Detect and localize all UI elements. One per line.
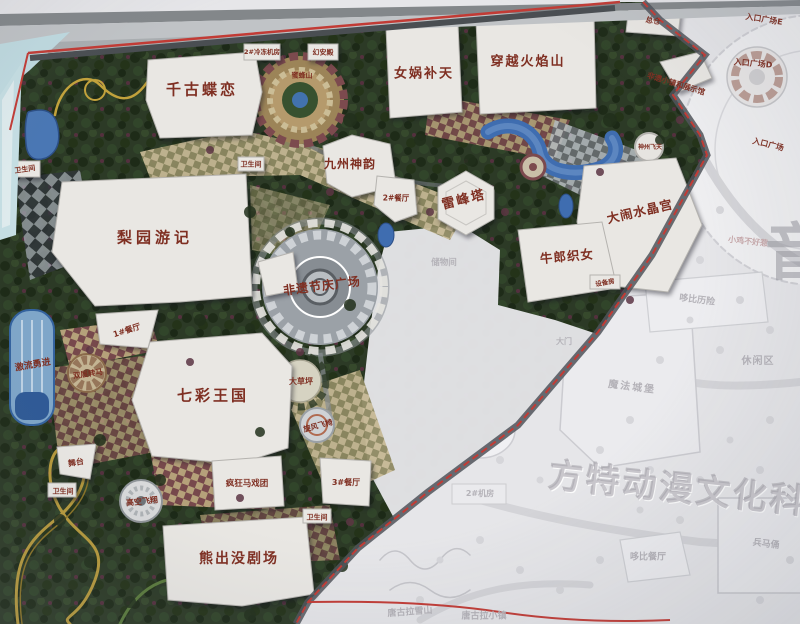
label-canting-3: 3#餐厅: [332, 479, 360, 487]
label-zongcang: 总仓: [645, 16, 661, 26]
label-duobi-canting: 哆比餐厅: [630, 554, 666, 563]
label-wc-4: 卫生间: [307, 515, 328, 522]
label-canting-2: 2#餐厅: [383, 194, 410, 202]
park-map-photo: 千古蝶恋 女娲补天 穿越火焰山 九州神韵 梨园游记 雷峰塔 非遗节庆广场 大闹水…: [0, 0, 800, 624]
label-nuwa-butian: 女娲补天: [394, 68, 454, 81]
label-mifengshan: 蜜蜂山: [292, 73, 313, 80]
label-xiongchumo-theater: 熊出没剧场: [199, 552, 279, 566]
side-watermark: 音: [765, 202, 800, 292]
label-lengdong-jifang: 2#冷冻机房: [244, 49, 280, 56]
label-huananddian: 幻安殿: [313, 50, 334, 57]
label-jiuzhou-shenyun: 九州神韵: [324, 158, 376, 170]
label-xiuxianqu: 休闲区: [742, 357, 775, 367]
label-qicai-wangguo: 七彩王国: [177, 389, 249, 404]
label-shenzhou-feitian: 神州飞天: [638, 145, 662, 151]
label-wc-3: 卫生间: [53, 489, 74, 496]
label-liyuan-youji: 梨园游记: [117, 231, 193, 246]
label-chuanyue-huoyanshan: 穿越火焰山: [490, 56, 565, 69]
map-graphics: [0, 0, 800, 624]
label-fengkuang-maxituan: 疯狂马戏团: [226, 480, 269, 489]
label-chuwujian: 储物间: [431, 259, 457, 268]
label-qiangu-dielian: 千古蝶恋: [166, 83, 238, 98]
label-tanggula-xiaozhen: 唐古拉小镇: [461, 613, 506, 622]
label-wc-2: 卫生间: [241, 162, 262, 169]
label-jifang-2: 2#机房: [466, 490, 494, 498]
label-damen: 大门: [556, 338, 572, 346]
label-dacaoping: 大草坪: [289, 378, 313, 386]
